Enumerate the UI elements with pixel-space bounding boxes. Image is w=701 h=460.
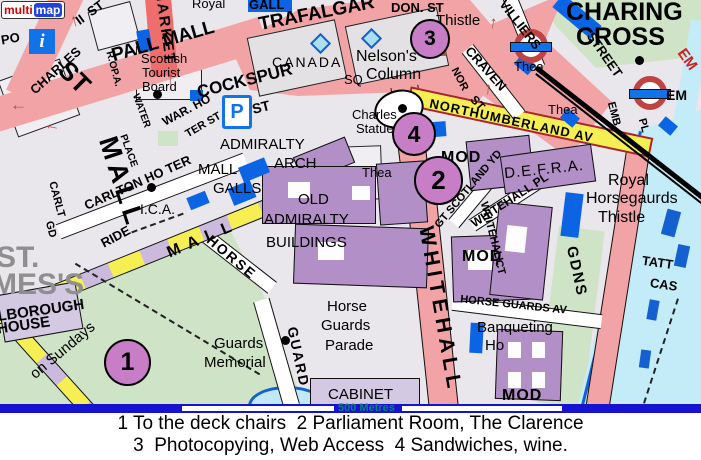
scale-bar-segment (182, 406, 334, 411)
logo-text-map: map (34, 3, 63, 17)
scale-bar: 500 Metres © Collins Bartholomew Ltd 200… (0, 404, 701, 413)
poi-markers-layer: 1234 (0, 0, 701, 404)
caption-line-2: 3 Photocopying, Web Access 4 Sandwiches,… (0, 435, 701, 457)
poi-marker-4[interactable]: 4 (392, 112, 436, 156)
logo-text-multi: multi (4, 3, 33, 17)
map-viewport[interactable]: i P POCHARLESII STSTMALLMARKETRoyalGALLP… (0, 0, 701, 404)
parking-icon: P (222, 95, 252, 129)
caption-legend: 1 To the deck chairs 2 Parliament Room, … (0, 413, 701, 460)
multimap-logo[interactable]: multi map (1, 1, 65, 19)
scale-bar-segment (402, 406, 562, 411)
poi-marker-3[interactable]: 3 (410, 19, 450, 59)
tourist-info-icon: i (29, 29, 55, 54)
poi-marker-1[interactable]: 1 (104, 339, 151, 386)
caption-line-1: 1 To the deck chairs 2 Parliament Room, … (0, 413, 701, 435)
screenshot-frame: i P POCHARLESII STSTMALLMARKETRoyalGALLP… (0, 0, 701, 460)
poi-marker-2[interactable]: 2 (414, 156, 463, 205)
